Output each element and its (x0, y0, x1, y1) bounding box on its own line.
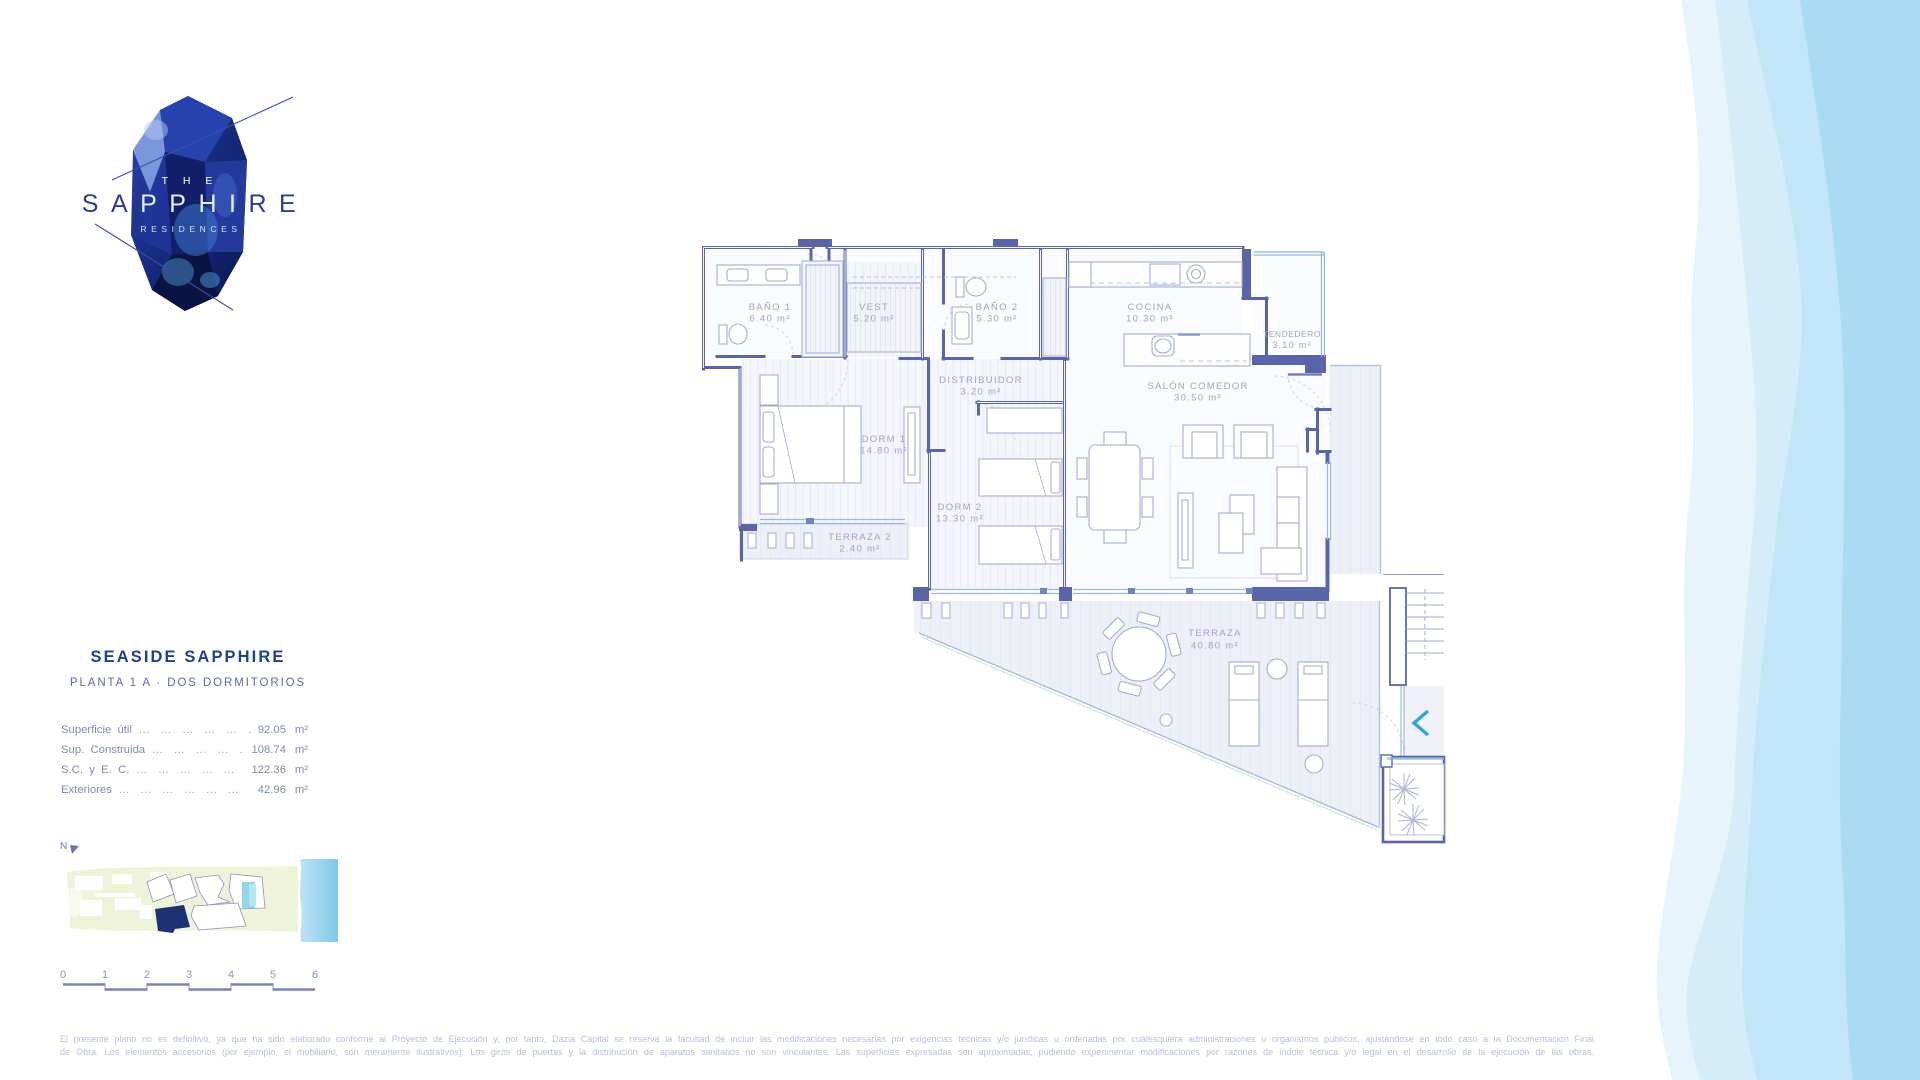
svg-text:5: 5 (270, 969, 276, 981)
svg-text:14.80 m²: 14.80 m² (860, 446, 908, 457)
svg-text:1: 1 (102, 969, 108, 981)
svg-text:SALÓN COMEDOR: SALÓN COMEDOR (1147, 381, 1248, 392)
svg-text:2.40 m²: 2.40 m² (839, 544, 880, 555)
svg-text:DORM 1: DORM 1 (862, 434, 907, 445)
svg-text:TERRAZA: TERRAZA (1188, 628, 1241, 639)
svg-text:DISTRIBUIDOR: DISTRIBUIDOR (939, 375, 1023, 386)
svg-text:DORM 2: DORM 2 (938, 502, 983, 513)
svg-text:TENDEDERO: TENDEDERO (1263, 329, 1321, 339)
svg-text:COCINA: COCINA (1128, 302, 1173, 313)
svg-text:TERRAZA 2: TERRAZA 2 (828, 532, 891, 543)
svg-text:N: N (60, 841, 67, 852)
svg-text:BAÑO 2: BAÑO 2 (976, 302, 1019, 313)
svg-text:3.10 m²: 3.10 m² (1272, 340, 1312, 350)
svg-text:6: 6 (312, 969, 318, 981)
svg-text:3: 3 (186, 969, 192, 981)
svg-text:6.40 m²: 6.40 m² (749, 314, 790, 325)
svg-text:2: 2 (144, 969, 150, 981)
svg-text:RESIDENCES: RESIDENCES (140, 224, 241, 234)
svg-text:3.20 m²: 3.20 m² (960, 387, 1001, 398)
svg-text:VEST: VEST (859, 302, 889, 313)
svg-text:T H E: T H E (162, 175, 219, 187)
svg-text:13.30 m²: 13.30 m² (936, 514, 984, 525)
svg-text:5.20 m²: 5.20 m² (853, 314, 894, 325)
svg-text:10.30 m²: 10.30 m² (1126, 314, 1174, 325)
svg-text:BAÑO 1: BAÑO 1 (749, 302, 792, 313)
svg-text:4: 4 (228, 969, 234, 981)
svg-text:0: 0 (60, 969, 66, 981)
svg-text:5.30 m²: 5.30 m² (976, 314, 1017, 325)
svg-text:40.80 m²: 40.80 m² (1191, 641, 1239, 652)
svg-text:30.50 m²: 30.50 m² (1174, 393, 1222, 404)
